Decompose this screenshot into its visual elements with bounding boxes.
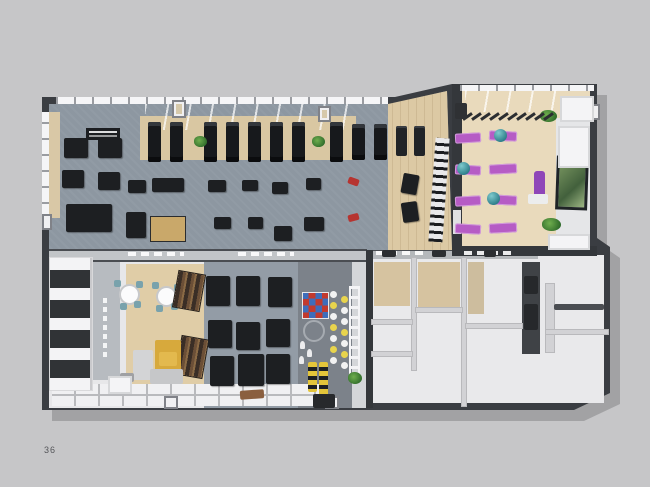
cardio-machine — [210, 356, 234, 386]
climbing-hold — [341, 296, 348, 303]
locker-wall — [372, 352, 412, 356]
dumbbell-rack — [400, 173, 419, 195]
climbing-hold — [330, 335, 337, 342]
speaker-cabinet — [455, 103, 467, 119]
gym-machine — [126, 212, 146, 238]
plant — [194, 136, 207, 147]
storage-shelving — [50, 258, 92, 390]
pillar — [42, 214, 52, 230]
gym-ball — [457, 162, 470, 175]
gym-machine — [274, 226, 292, 241]
wall-decor-ring — [303, 320, 325, 342]
climbing-holds-panel — [302, 292, 329, 319]
entry-tile-floor — [52, 384, 328, 406]
sofa-cushion — [159, 352, 177, 366]
climbing-hold — [330, 302, 337, 309]
cardio-machine — [208, 320, 232, 348]
bench-station — [64, 138, 88, 158]
climbing-hold — [341, 362, 348, 369]
cardio-machine — [206, 276, 230, 306]
locker-wall — [546, 330, 608, 334]
cardio-machine — [266, 354, 290, 384]
figure — [300, 341, 305, 349]
figure — [307, 349, 312, 357]
cafe-chair — [134, 301, 141, 308]
cardio-machine — [236, 322, 260, 350]
locker-wall — [462, 258, 466, 406]
plant — [542, 218, 561, 231]
cafe-chair — [120, 303, 127, 310]
climbing-hold — [330, 313, 337, 320]
entrance-door — [313, 394, 335, 408]
plant — [348, 372, 362, 384]
gym-machine — [128, 180, 146, 193]
locker-wall — [416, 308, 462, 312]
gym-machine — [248, 217, 263, 229]
treadmill — [226, 122, 239, 162]
bench-station — [98, 138, 122, 158]
cafe-chair — [136, 281, 143, 288]
page-number: 36 — [44, 445, 56, 455]
gym-machine — [272, 182, 288, 194]
treadmill — [170, 122, 183, 162]
wall-signage — [238, 252, 294, 256]
yoga-mat — [455, 223, 481, 234]
wooden-machine — [150, 216, 186, 242]
yoga-mat — [489, 222, 517, 233]
gym-machine — [208, 180, 226, 192]
weight-tower — [414, 126, 425, 156]
gym-machine — [152, 178, 184, 192]
treadmill — [270, 122, 283, 162]
wall-niche — [524, 276, 538, 294]
floor-plan-page: 36 — [0, 0, 650, 487]
cafe-chair — [152, 282, 159, 289]
climbing-hold — [330, 346, 337, 353]
cafe-chair — [114, 280, 121, 287]
white-cabinet — [108, 376, 132, 394]
white-bench — [528, 194, 548, 204]
glazing-reflection — [465, 90, 560, 112]
climbing-hold — [341, 307, 348, 314]
wall-signage — [128, 252, 184, 256]
locker-tan-wall — [418, 262, 460, 312]
bench-station — [62, 170, 84, 188]
climbing-hold — [330, 291, 337, 298]
cafe-chair — [156, 305, 163, 312]
gym-machine — [304, 217, 324, 231]
cable-crossover — [66, 204, 112, 232]
locker-tan-wall — [468, 262, 484, 314]
gym-machine — [214, 217, 231, 229]
left-window-band — [42, 112, 49, 220]
pillar — [172, 100, 186, 118]
figure — [299, 356, 304, 364]
exercise-bike — [374, 124, 387, 160]
locker-door — [432, 250, 446, 257]
climbing-hold — [341, 351, 348, 358]
yoga-mat — [455, 195, 481, 206]
gym-machine — [242, 180, 258, 191]
white-cabinet — [548, 234, 590, 250]
exercise-bike — [352, 124, 365, 160]
gym-machine — [306, 178, 321, 190]
plant — [312, 136, 325, 147]
treadmill — [248, 122, 261, 162]
climbing-hold — [330, 324, 337, 331]
cardio-machine — [266, 319, 290, 347]
climbing-hold — [330, 357, 337, 364]
left-window-sill — [49, 112, 60, 218]
cardio-machine — [238, 354, 264, 386]
wall-sign — [86, 128, 120, 140]
pillar — [164, 396, 178, 409]
white-cabinet — [558, 126, 590, 168]
cardio-machine — [236, 276, 260, 306]
locker-wall — [412, 258, 416, 370]
yoga-mat — [455, 132, 481, 143]
locker-door — [382, 250, 396, 257]
wall-signage-vertical — [103, 298, 107, 360]
door-rug — [240, 389, 265, 400]
locker-wall — [546, 284, 554, 352]
gym-ball — [494, 129, 507, 142]
treadmill — [292, 122, 305, 162]
locker-door — [484, 250, 496, 257]
climbing-hold — [341, 318, 348, 325]
climb-locker-wall — [366, 250, 373, 408]
rope-ladder — [349, 286, 360, 378]
bench-station — [98, 172, 120, 190]
climbing-hold — [341, 340, 348, 347]
weight-tower — [396, 126, 407, 156]
locker-wall — [372, 320, 412, 324]
treadmill — [330, 122, 343, 162]
locker-wall — [466, 324, 522, 328]
divider-wall — [49, 249, 367, 262]
dumbbell-rack — [401, 201, 420, 223]
kids-toy — [308, 362, 317, 392]
locker-tan-wall — [374, 262, 410, 306]
cardio-machine — [268, 277, 292, 307]
yoga-mat — [489, 163, 517, 174]
window-block — [560, 96, 594, 122]
gym-window-band — [56, 97, 388, 104]
kids-toy — [319, 362, 328, 396]
pillar — [318, 106, 331, 122]
gym-ball — [487, 192, 500, 205]
wall-niche — [524, 304, 538, 330]
sofa-seat — [150, 369, 183, 384]
wardrobe-shelf — [554, 304, 604, 310]
climbing-hold — [341, 329, 348, 336]
treadmill — [148, 122, 161, 162]
